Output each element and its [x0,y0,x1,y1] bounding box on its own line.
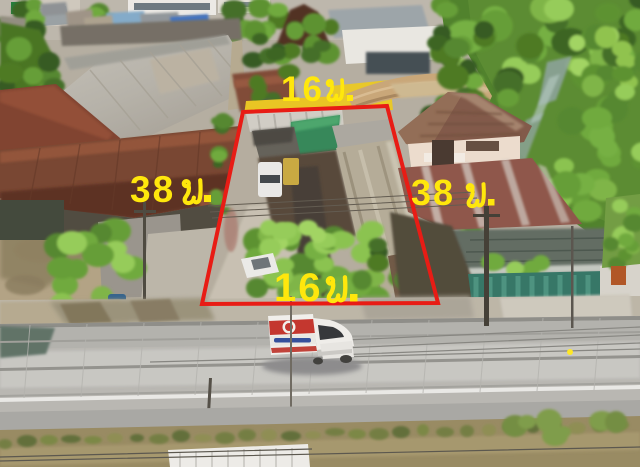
svg-text:16: 16 [281,70,324,109]
svg-text:38: 38 [130,169,175,210]
svg-text:16: 16 [274,266,323,310]
svg-text:38: 38 [411,172,455,213]
